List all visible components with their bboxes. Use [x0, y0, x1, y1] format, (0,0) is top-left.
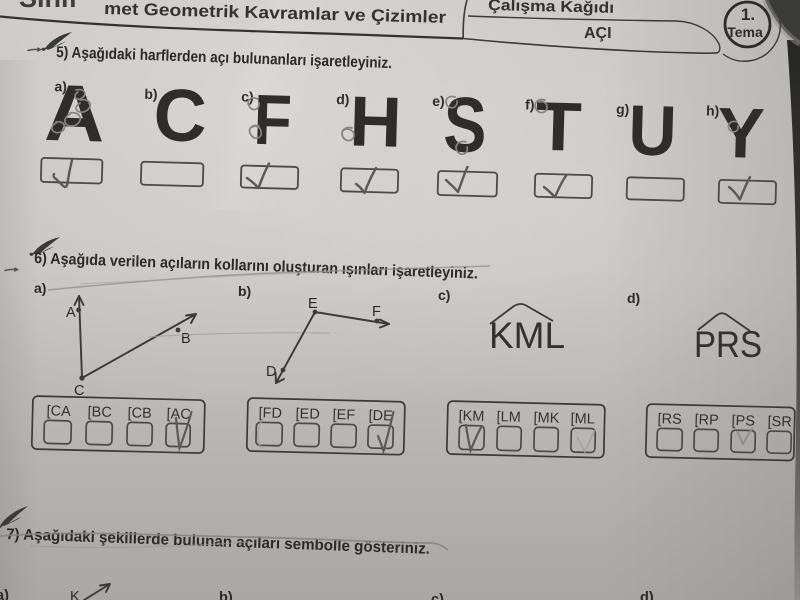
svg-text:d): d)	[640, 590, 654, 600]
svg-text:Y: Y	[716, 94, 765, 174]
svg-text:[MK: [MK	[533, 410, 559, 427]
svg-text:C: C	[153, 73, 208, 157]
svg-text:AÇI: AÇI	[584, 25, 612, 42]
svg-text:Çalışma Kağıdı: Çalışma Kağıdı	[488, 0, 614, 17]
svg-text:[CB: [CB	[127, 405, 152, 422]
svg-text:b): b)	[238, 283, 251, 299]
svg-text:[SR: [SR	[767, 414, 792, 431]
svg-text:[ML: [ML	[570, 411, 595, 428]
svg-text:Tema: Tema	[727, 24, 763, 40]
svg-text:[DE: [DE	[368, 408, 393, 425]
svg-text:[KM: [KM	[458, 408, 484, 425]
svg-text:B: B	[181, 331, 191, 347]
svg-text:F: F	[372, 304, 381, 320]
svg-text:PRS: PRS	[694, 324, 762, 365]
svg-text:c): c)	[438, 287, 450, 303]
svg-text:b): b)	[219, 590, 233, 600]
svg-text:a): a)	[0, 588, 9, 600]
svg-text:E: E	[308, 296, 318, 312]
svg-text:e): e)	[432, 93, 445, 109]
svg-text:Sınıf: Sınıf	[19, 0, 79, 13]
svg-text:[RP: [RP	[694, 412, 719, 429]
svg-text:[PS: [PS	[731, 413, 755, 430]
svg-text:[LM: [LM	[496, 409, 521, 426]
svg-text:H: H	[349, 82, 403, 162]
svg-text:[ED: [ED	[295, 406, 320, 423]
svg-text:[BC: [BC	[87, 404, 112, 421]
svg-text:f): f)	[525, 96, 535, 112]
svg-text:S: S	[442, 80, 487, 169]
svg-text:[RS: [RS	[657, 411, 682, 428]
svg-text:[CA: [CA	[46, 403, 71, 420]
svg-text:D: D	[266, 364, 276, 380]
svg-text:K: K	[70, 589, 80, 600]
svg-text:1.: 1.	[741, 5, 755, 24]
svg-text:U: U	[627, 91, 677, 171]
svg-text:[AC: [AC	[166, 406, 191, 423]
svg-text:a): a)	[34, 280, 46, 296]
svg-text:d): d)	[627, 290, 640, 306]
svg-text:d): d)	[336, 91, 350, 107]
svg-text:g): g)	[616, 101, 630, 117]
svg-text:KML: KML	[489, 315, 565, 356]
svg-text:F: F	[253, 81, 293, 161]
svg-text:A: A	[66, 305, 76, 321]
svg-text:[EF: [EF	[332, 407, 355, 424]
svg-text:c): c)	[431, 592, 444, 600]
